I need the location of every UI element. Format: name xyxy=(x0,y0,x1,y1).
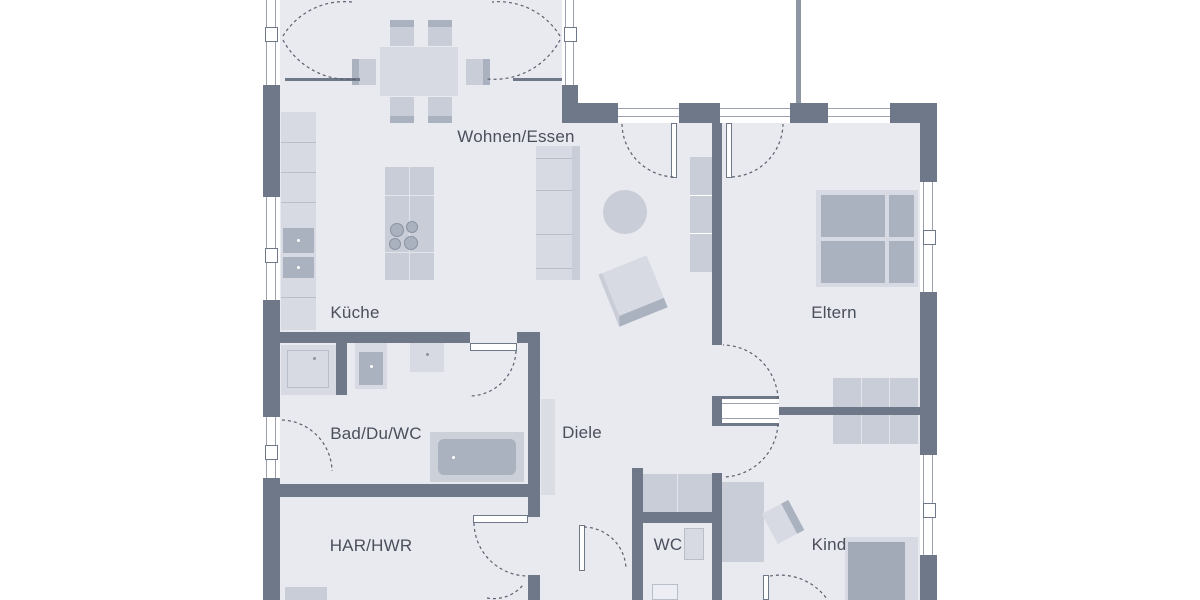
coffee-table xyxy=(603,190,647,234)
bathtub xyxy=(430,432,524,482)
wall xyxy=(562,85,578,123)
door-leaf xyxy=(726,123,732,178)
wall xyxy=(712,123,722,345)
washing-machine xyxy=(285,587,327,600)
wall xyxy=(777,407,920,415)
room-label-eltern: Eltern xyxy=(811,303,857,323)
window-handle-icon xyxy=(923,503,936,518)
dining-chair xyxy=(428,97,452,123)
dining-chair xyxy=(390,20,414,46)
shower xyxy=(281,345,336,395)
desk xyxy=(722,482,764,562)
window-handle-icon xyxy=(265,248,278,263)
cooktop-burner-icon xyxy=(404,236,418,250)
window xyxy=(263,417,280,478)
window xyxy=(920,182,937,292)
window xyxy=(562,0,578,85)
wall xyxy=(528,332,540,517)
wardrobe xyxy=(833,378,918,407)
window xyxy=(920,455,937,555)
wall xyxy=(263,300,280,417)
door-leaf xyxy=(513,78,562,81)
wall xyxy=(336,343,347,395)
pillow xyxy=(889,195,914,237)
sideboard xyxy=(541,399,555,495)
dining-chair xyxy=(466,59,490,85)
sideboard xyxy=(690,157,712,272)
dishwasher xyxy=(283,257,314,278)
cooktop-burner-icon xyxy=(389,238,401,250)
room-label-wohnen-essen: Wohnen/Essen xyxy=(457,127,574,147)
dining-chair xyxy=(352,59,376,85)
cooktop-burner-icon xyxy=(406,221,418,233)
mattress xyxy=(821,195,885,237)
window xyxy=(263,197,280,300)
room-label-har-hwr: HAR/HWR xyxy=(330,536,413,556)
wall xyxy=(920,555,937,600)
wall xyxy=(263,332,470,343)
wall xyxy=(263,85,280,197)
pillow xyxy=(889,241,914,283)
door-leaf xyxy=(473,515,528,523)
door-leaf xyxy=(285,78,360,81)
room-label-wc: WC xyxy=(654,535,683,555)
window-handle-icon xyxy=(265,27,278,42)
wall xyxy=(263,484,528,497)
wall xyxy=(920,103,937,182)
terrace-door-glazing xyxy=(720,103,790,123)
washbasin xyxy=(410,343,444,372)
washbasin xyxy=(355,343,387,389)
wall xyxy=(632,468,643,600)
wall xyxy=(712,473,722,600)
oven xyxy=(283,228,314,253)
room-label-kueche: Küche xyxy=(330,303,379,323)
window xyxy=(828,103,890,123)
sofa xyxy=(536,146,580,280)
room-label-kind: Kind xyxy=(812,535,847,555)
washbasin xyxy=(652,584,678,600)
double-bed xyxy=(816,190,918,287)
wall xyxy=(578,103,618,123)
toilet xyxy=(684,528,704,560)
window xyxy=(263,0,280,85)
wall xyxy=(679,103,720,123)
wall xyxy=(790,103,828,123)
door-leaf xyxy=(579,525,585,571)
cooktop-burner-icon xyxy=(390,223,404,237)
window-handle-icon xyxy=(564,27,577,42)
floor-plan: Wohnen/Essen Küche Eltern Bad/Du/WC Diel… xyxy=(0,0,1200,600)
wardrobe xyxy=(833,415,918,444)
room-label-bad-du-wc: Bad/Du/WC xyxy=(330,424,422,444)
door-leaf xyxy=(763,575,769,600)
window-handle-icon xyxy=(923,230,936,245)
dining-chair xyxy=(428,20,452,46)
mattress xyxy=(821,241,885,283)
mattress xyxy=(848,542,905,600)
dining-table xyxy=(380,47,458,96)
bed xyxy=(845,537,918,600)
room-label-diele: Diele xyxy=(562,423,602,443)
wall xyxy=(712,396,722,426)
terrace-door-glazing xyxy=(618,103,679,123)
dining-chair xyxy=(390,97,414,123)
wall xyxy=(920,292,937,455)
kitchen-counter xyxy=(281,112,316,330)
hallway-closet xyxy=(643,474,712,512)
wall xyxy=(643,512,712,523)
door-leaf xyxy=(722,396,779,426)
wall xyxy=(528,575,540,600)
window-handle-icon xyxy=(265,445,278,460)
door-leaf xyxy=(671,123,677,178)
door-leaf xyxy=(470,343,517,351)
kitchen-island xyxy=(385,167,434,280)
terrace-divider xyxy=(796,0,801,103)
